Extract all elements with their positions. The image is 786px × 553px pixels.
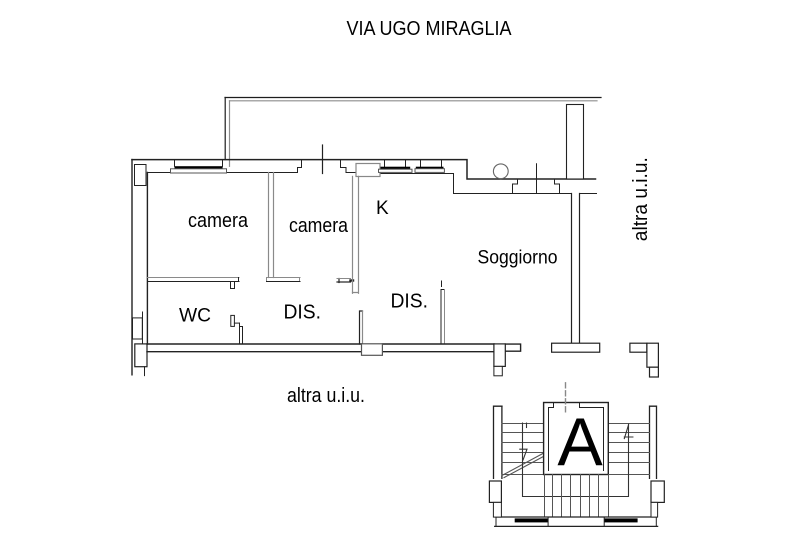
svg-text:A: A <box>557 404 603 480</box>
svg-text:K: K <box>376 198 389 219</box>
svg-text:Soggiorno: Soggiorno <box>478 248 558 269</box>
svg-text:VIA UGO MIRAGLIA: VIA UGO MIRAGLIA <box>347 18 513 40</box>
svg-text:camera: camera <box>188 210 249 232</box>
svg-text:WC: WC <box>179 305 211 326</box>
svg-text:camera: camera <box>289 215 349 237</box>
svg-text:DIS.: DIS. <box>284 302 322 324</box>
svg-text:DIS.: DIS. <box>391 291 429 313</box>
svg-text:altra u.i.u.: altra u.i.u. <box>287 385 365 407</box>
svg-text:altra u.i.u.: altra u.i.u. <box>630 157 652 241</box>
